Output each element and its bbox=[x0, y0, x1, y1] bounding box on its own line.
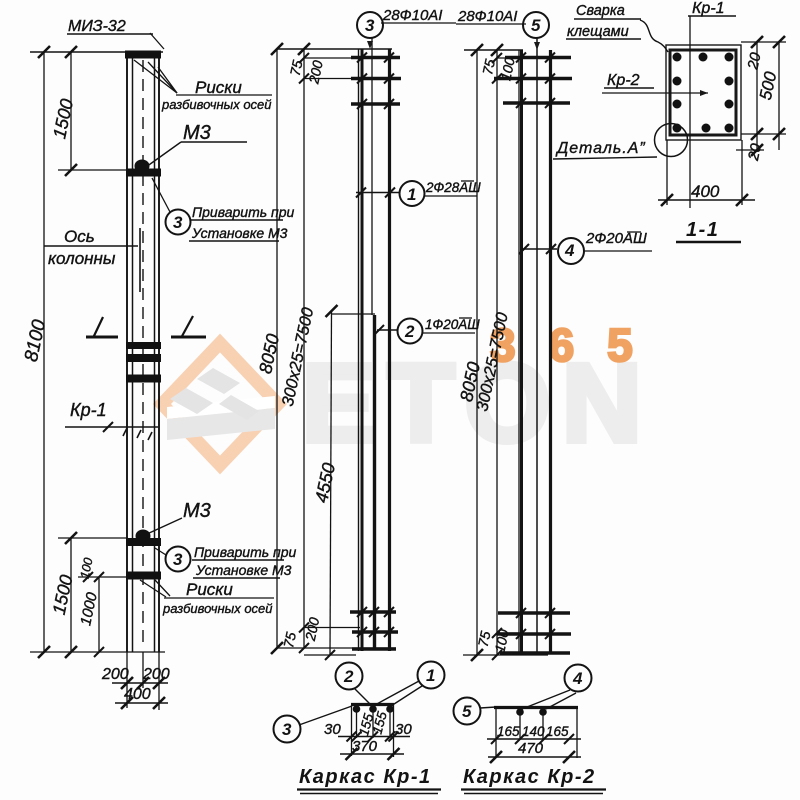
svg-text:100: 100 bbox=[78, 556, 96, 579]
svg-text:5: 5 bbox=[531, 16, 541, 35]
svg-text:Приварить при: Приварить при bbox=[192, 204, 294, 220]
svg-text:Ось: Ось bbox=[64, 227, 95, 246]
svg-text:3: 3 bbox=[173, 550, 183, 569]
svg-text:165: 165 bbox=[497, 724, 520, 739]
svg-text:1-1: 1-1 bbox=[686, 219, 719, 241]
svg-text:20: 20 bbox=[744, 50, 764, 71]
svg-text:4550: 4550 bbox=[311, 461, 339, 504]
svg-text:3: 3 bbox=[365, 16, 375, 35]
svg-text:470: 470 bbox=[518, 740, 544, 757]
svg-text:М3: М3 bbox=[183, 500, 211, 522]
svg-text:4: 4 bbox=[564, 241, 575, 260]
svg-text:200: 200 bbox=[101, 666, 129, 683]
svg-text:3: 3 bbox=[173, 213, 183, 232]
svg-text:Каркас Кр-2: Каркас Кр-2 bbox=[463, 766, 596, 788]
svg-text:Риски: Риски bbox=[195, 78, 242, 97]
svg-text:28Ф10АI: 28Ф10АI bbox=[382, 7, 442, 24]
svg-text:100: 100 bbox=[491, 628, 512, 654]
svg-text:Кр-2: Кр-2 bbox=[607, 72, 640, 89]
svg-text:2Ф28АШ: 2Ф28АШ bbox=[425, 180, 481, 195]
svg-text:1: 1 bbox=[407, 185, 416, 204]
svg-text:разбивочных осей: разбивочных осей bbox=[161, 97, 272, 112]
svg-text:140: 140 bbox=[522, 724, 545, 739]
svg-text:200: 200 bbox=[302, 616, 323, 643]
svg-text:5: 5 bbox=[462, 702, 472, 721]
svg-text:3: 3 bbox=[282, 720, 292, 739]
svg-text:Деталь.А”: Деталь.А” bbox=[555, 140, 646, 157]
svg-text:4: 4 bbox=[572, 669, 583, 688]
svg-text:370: 370 bbox=[352, 738, 378, 755]
svg-text:МИЗ-32: МИЗ-32 bbox=[68, 18, 126, 35]
svg-text:колонны: колонны bbox=[48, 249, 116, 268]
svg-text:1Ф20АШ: 1Ф20АШ bbox=[425, 317, 480, 332]
svg-text:165: 165 bbox=[546, 724, 569, 739]
svg-text:30: 30 bbox=[395, 721, 412, 738]
svg-text:8050: 8050 bbox=[255, 332, 283, 375]
svg-text:365: 365 bbox=[490, 319, 666, 371]
svg-text:Каркас Кр-1: Каркас Кр-1 bbox=[299, 766, 432, 788]
svg-text:30: 30 bbox=[324, 721, 341, 738]
svg-text:1000: 1000 bbox=[77, 590, 101, 627]
svg-text:2: 2 bbox=[343, 667, 354, 686]
svg-text:1500: 1500 bbox=[49, 573, 77, 616]
svg-text:200: 200 bbox=[305, 59, 326, 86]
svg-text:8100: 8100 bbox=[21, 318, 50, 364]
svg-text:1500: 1500 bbox=[49, 97, 77, 140]
svg-text:Сварка: Сварка bbox=[576, 3, 625, 19]
svg-text:75: 75 bbox=[280, 630, 299, 649]
svg-text:1: 1 bbox=[426, 666, 435, 685]
svg-text:Кр-1: Кр-1 bbox=[70, 400, 107, 420]
svg-text:500: 500 bbox=[756, 69, 781, 101]
svg-text:Риски: Риски bbox=[186, 580, 233, 599]
svg-text:2: 2 bbox=[404, 322, 415, 341]
svg-text:разбивочных осей: разбивочных осей bbox=[162, 601, 273, 616]
svg-text:Установке М3: Установке М3 bbox=[191, 225, 288, 241]
svg-text:М3: М3 bbox=[183, 122, 211, 144]
svg-text:Приварить при: Приварить при bbox=[194, 544, 296, 560]
svg-text:75: 75 bbox=[287, 58, 306, 77]
svg-text:28Ф10АI: 28Ф10АI bbox=[457, 8, 517, 25]
svg-text:400: 400 bbox=[691, 182, 720, 201]
svg-text:75: 75 bbox=[475, 629, 494, 648]
svg-text:Кр-1: Кр-1 bbox=[692, 0, 725, 17]
svg-text:клещами: клещами bbox=[567, 24, 629, 40]
